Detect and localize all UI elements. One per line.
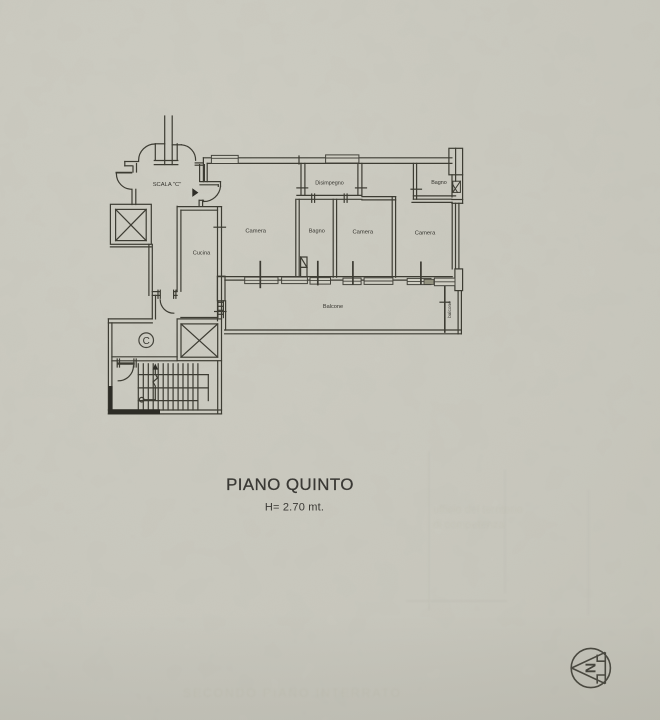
svg-text:Camera: Camera: [415, 230, 436, 236]
svg-text:Bagno: Bagno: [431, 180, 447, 186]
svg-text:Bagno: Bagno: [309, 229, 325, 235]
svg-text:N: N: [582, 663, 598, 673]
svg-text:H= 2.70 mt.: H= 2.70 mt.: [265, 502, 324, 514]
svg-text:di competenza: di competenza: [433, 519, 505, 531]
svg-text:PIANO QUINTO: PIANO QUINTO: [226, 475, 354, 494]
svg-text:Camera: Camera: [245, 228, 266, 234]
svg-text:Cucina: Cucina: [193, 251, 211, 257]
svg-text:ufficio del territorio: ufficio del territorio: [433, 504, 523, 516]
svg-text:SCALA "C": SCALA "C": [153, 182, 182, 188]
svg-text:Balcone: Balcone: [323, 304, 343, 310]
svg-text:Camera: Camera: [352, 229, 373, 235]
svg-text:SECONDO PIANO INTERRATO: SECONDO PIANO INTERRATO: [183, 686, 402, 700]
svg-text:Disimpegno: Disimpegno: [315, 180, 343, 186]
svg-text:C: C: [143, 336, 150, 347]
svg-text:balcone: balcone: [447, 301, 453, 318]
